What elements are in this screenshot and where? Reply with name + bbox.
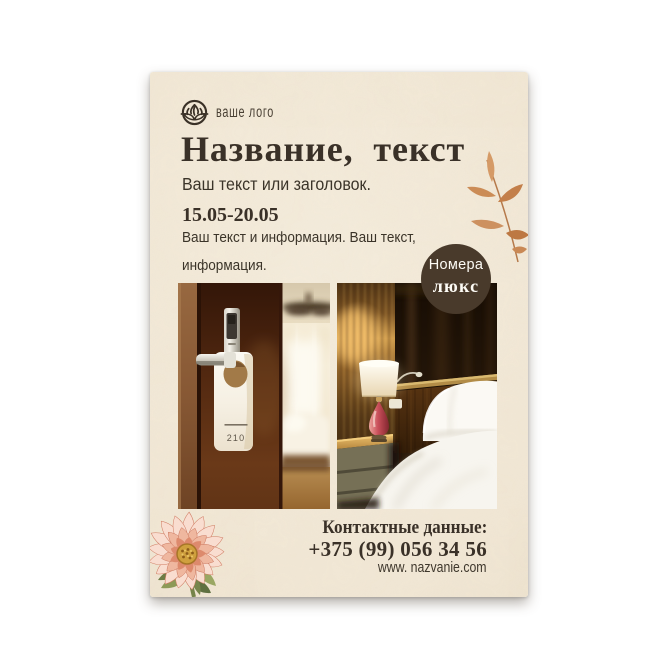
svg-text:210: 210	[227, 433, 246, 443]
